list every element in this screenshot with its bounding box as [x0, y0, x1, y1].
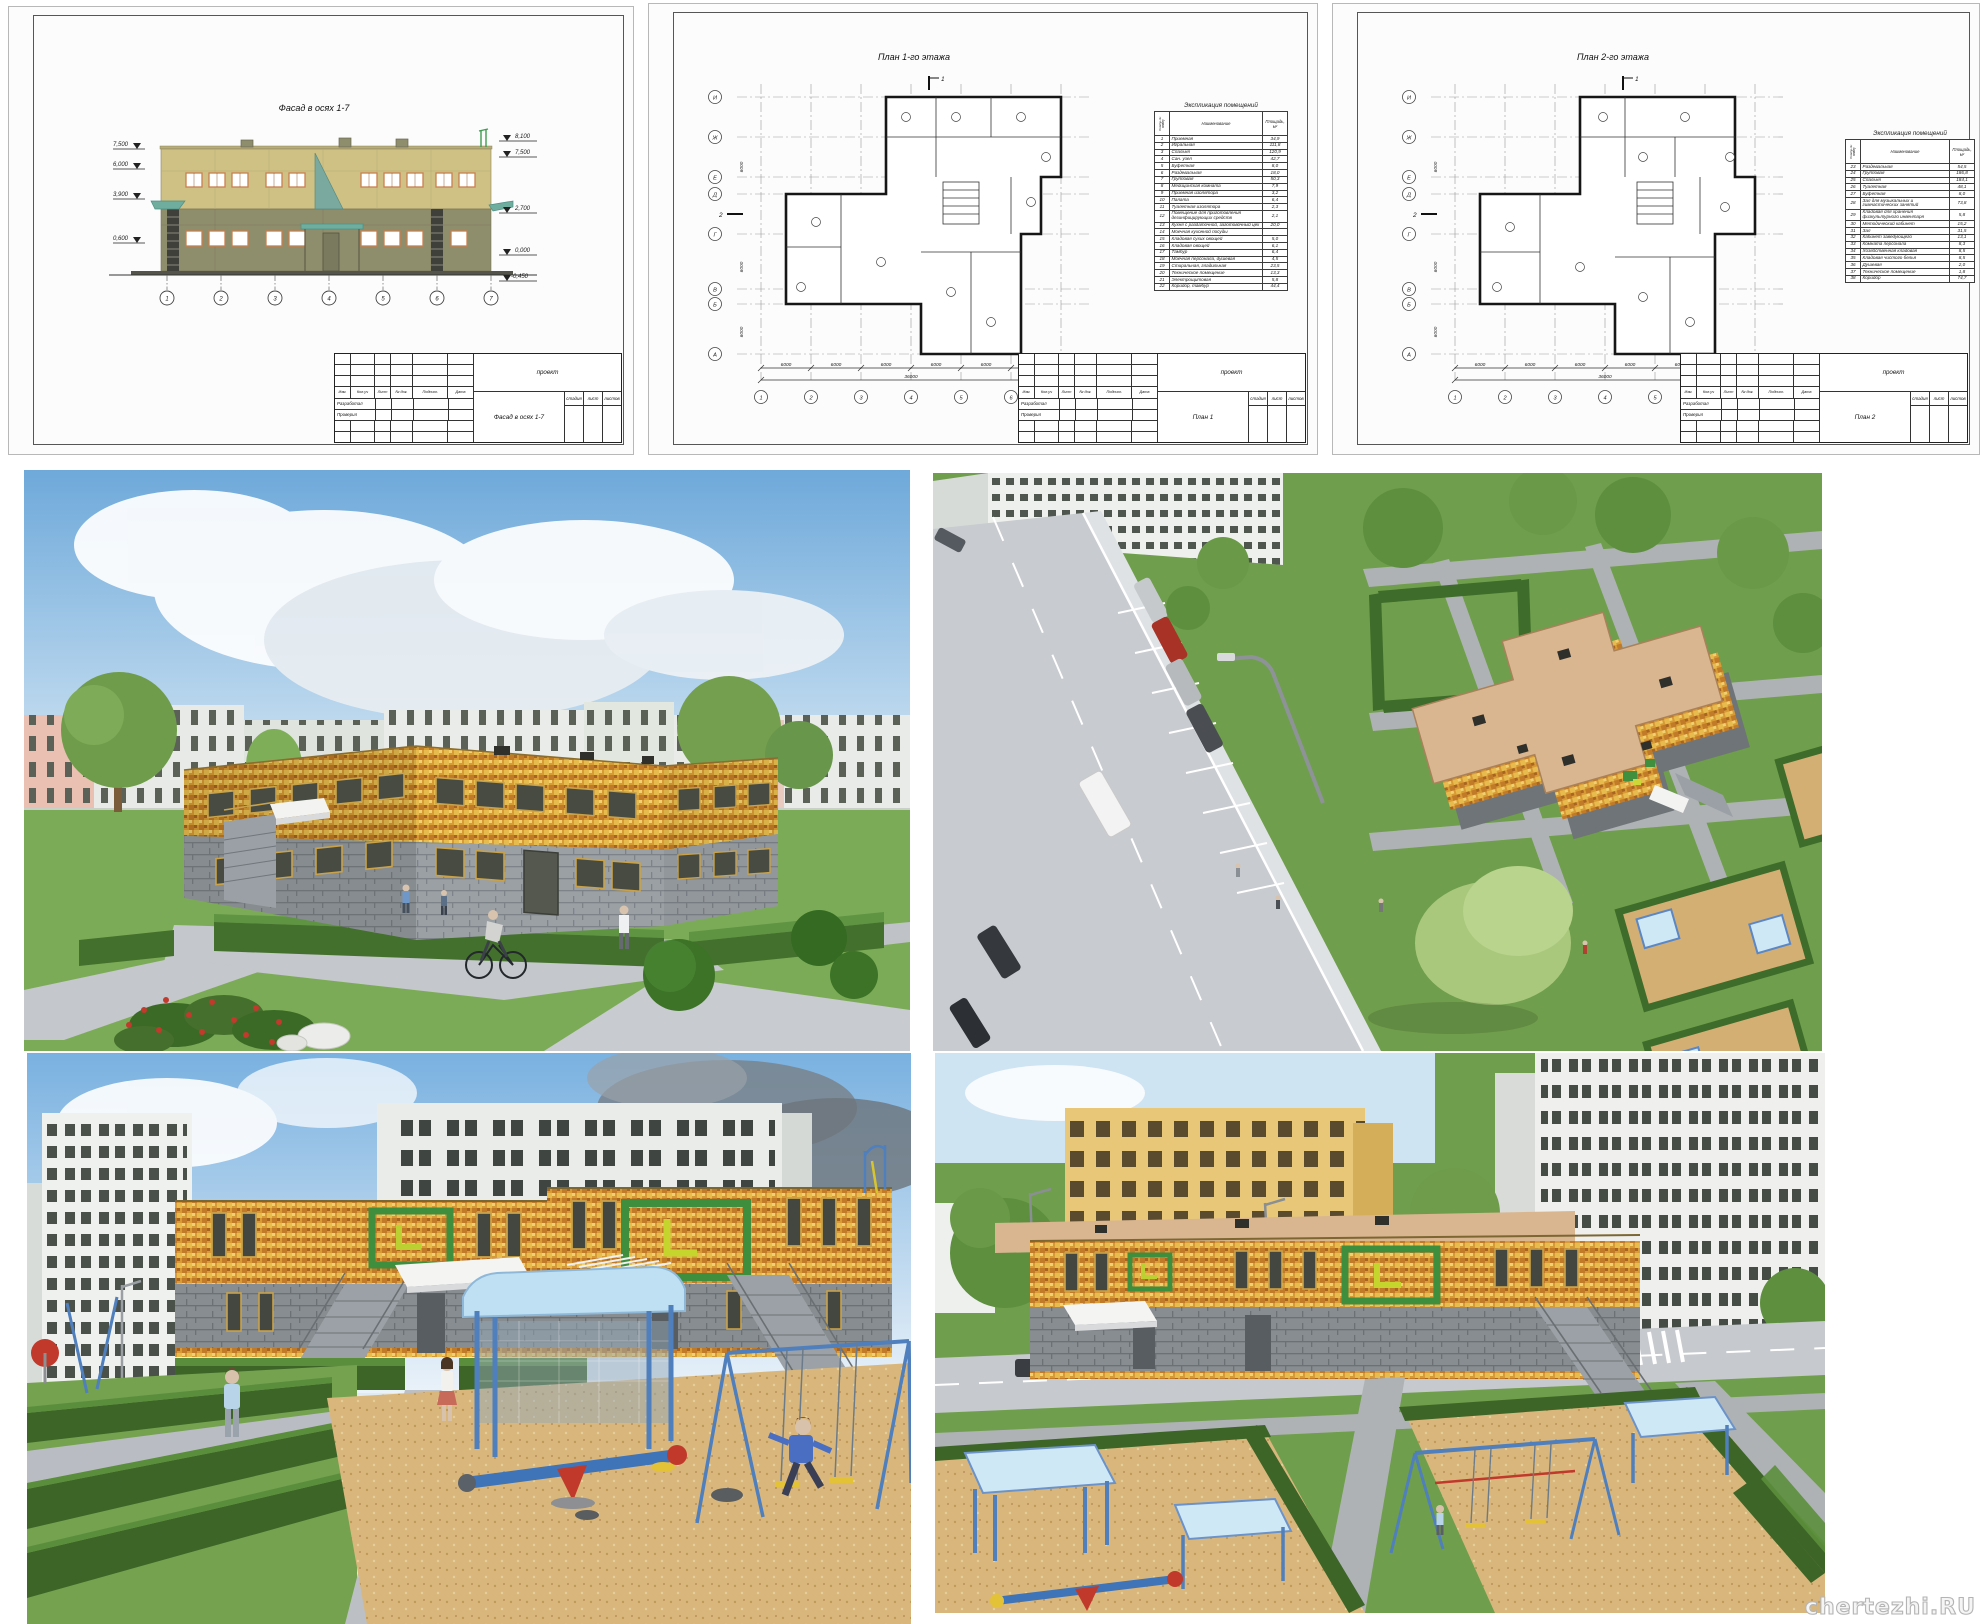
svg-text:Б: Б	[713, 303, 717, 309]
svg-text:Ж: Ж	[1405, 136, 1412, 142]
title-block-project: проект	[1158, 354, 1305, 392]
svg-text:Б: Б	[1407, 303, 1411, 309]
table-row: 10Палата6,4	[1155, 197, 1288, 204]
svg-text:7,500: 7,500	[113, 142, 129, 148]
title-block-doc-title: План 1	[1158, 392, 1249, 442]
table-row: 7Групповая50,3	[1155, 176, 1288, 183]
table-row: 14Моечная кухонной посуды	[1155, 229, 1288, 236]
plan1-drawing-title: План 1-го этажа	[878, 52, 950, 62]
table-row: 30Методический кабинет15,2	[1846, 221, 1975, 228]
room-schedule-title: Экспликация помещений	[1154, 102, 1288, 109]
kindergarten-building	[995, 1211, 1653, 1403]
svg-text:1: 1	[1635, 76, 1639, 83]
svg-text:2: 2	[718, 212, 723, 219]
table-row: 22Коридор, тамбур44,4	[1155, 283, 1288, 290]
render-street-view	[24, 470, 910, 1051]
facade-drawing: 7,500 6,000 3,900 0,600 8,100 7,500 2,70…	[91, 113, 551, 311]
plan1-outline	[786, 97, 1061, 354]
table-row: 28Зал для музыкальных и гимнастических з…	[1846, 198, 1975, 210]
svg-text:6000: 6000	[831, 362, 842, 368]
svg-text:Д: Д	[1406, 193, 1411, 199]
svg-text:1: 1	[165, 297, 168, 303]
table-row: 19Стиральная, гладильная23,5	[1155, 263, 1288, 270]
table-row: 33Комната персонала8,3	[1846, 241, 1975, 248]
svg-text:Ж: Ж	[711, 136, 718, 142]
title-block-project: проект	[474, 354, 621, 392]
facade-drawing-title: Фасад в осях 1-7	[279, 103, 350, 113]
elevation-marks-right: 8,100 7,500 2,700 0,000 -0,450	[499, 134, 537, 281]
project-collage: Фасад в осях 1-7	[0, 0, 1986, 1624]
svg-text:1: 1	[941, 76, 945, 83]
svg-text:Е: Е	[1407, 176, 1411, 182]
table-row: 5Буфетная8,0	[1155, 163, 1288, 170]
svg-text:2,700: 2,700	[514, 206, 531, 212]
svg-text:6000: 6000	[981, 362, 992, 368]
table-row: 32Кабинет заведующего13,1	[1846, 234, 1975, 241]
svg-text:6000: 6000	[1433, 161, 1439, 172]
svg-text:6000: 6000	[931, 362, 942, 368]
table-row: 12Помещение для приготовления дезинфицир…	[1155, 210, 1288, 222]
svg-text:В: В	[713, 288, 717, 294]
room-schedule: Экспликация помещений Номер по плану Наи…	[1845, 130, 1975, 283]
table-row: 24Групповая186,8	[1846, 170, 1975, 177]
plan2-drawing-title: План 2-го этажа	[1577, 52, 1649, 62]
table-row: 21Электрощитовая5,8	[1155, 277, 1288, 284]
table-row: 25Спальня184,1	[1846, 177, 1975, 184]
site-watermark: chertezhi.RU	[1805, 1595, 1976, 1620]
svg-text:1: 1	[1453, 396, 1456, 402]
svg-text:6000: 6000	[739, 261, 745, 272]
svg-text:6000: 6000	[739, 161, 745, 172]
facade-building	[109, 129, 537, 275]
table-row: 20Техническое помещение13,3	[1155, 270, 1288, 277]
table-row: 29Кладовая для хранения физкультурного и…	[1846, 209, 1975, 221]
table-row: 35Кладовая чистого белья8,5	[1846, 255, 1975, 262]
table-row: 1Приемная34,9	[1155, 136, 1288, 143]
table-row: 36Душевая2,0	[1846, 262, 1975, 269]
svg-text:Е: Е	[713, 176, 717, 182]
title-block-project: проект	[1820, 354, 1967, 392]
svg-text:6000: 6000	[1433, 326, 1439, 337]
roof-vents	[241, 138, 408, 147]
svg-text:6000: 6000	[1625, 362, 1636, 368]
render-playground-view	[27, 1053, 911, 1624]
table-row: 27Буфетная8,0	[1846, 191, 1975, 198]
svg-text:1: 1	[759, 396, 762, 402]
left-hedges-path	[27, 1365, 367, 1624]
table-row: 31Зал31,5	[1846, 228, 1975, 235]
facade-entrance-door	[323, 233, 339, 271]
elevation-marks-left: 7,500 6,000 3,900 0,600	[113, 142, 145, 243]
table-row: 9Приемная изолятора3,2	[1155, 190, 1288, 197]
table-row: 26Туалетная48,1	[1846, 184, 1975, 191]
title-block: Изм.Кол.учЛист№ док.ПодписьДата Разработ…	[1018, 353, 1306, 443]
title-block-doc-title: Фасад в осях 1-7	[474, 392, 565, 442]
svg-text:0,600: 0,600	[113, 236, 129, 242]
svg-text:7,500: 7,500	[515, 150, 531, 156]
svg-text:8,100: 8,100	[515, 134, 531, 140]
table-row: 8Медицинская комната7,9	[1155, 183, 1288, 190]
table-row: 2Игральная111,8	[1155, 142, 1288, 149]
room-schedule-rows: 1Приемная34,92Игральная111,83Спальня120,…	[1155, 136, 1288, 291]
svg-text:И: И	[1407, 96, 1411, 102]
kindergarten-building	[184, 746, 778, 940]
room-schedule-rows: 23Раздевальная54,524Групповая186,825Спал…	[1846, 164, 1975, 283]
svg-text:6000: 6000	[739, 326, 745, 337]
svg-text:2: 2	[218, 297, 223, 303]
table-row: 23Раздевальная54,5	[1846, 164, 1975, 171]
svg-text:В: В	[1407, 288, 1411, 294]
sheet-plan1: План 1-го этажа	[648, 3, 1318, 455]
table-row: 15Кладовая сухих овощей5,0	[1155, 236, 1288, 243]
roof-mast	[479, 129, 488, 147]
facade-entrance-canopy	[301, 224, 363, 229]
table-row: 34Хозяйственная кладовая8,5	[1846, 248, 1975, 255]
table-row: 3Спальня120,9	[1155, 149, 1288, 156]
facade-axes: 12 34 56 7	[160, 275, 498, 305]
svg-text:4: 4	[909, 396, 912, 402]
svg-text:3,900: 3,900	[113, 192, 129, 198]
title-block: Изм.Кол.учЛист№ док.ПодписьДата Разработ…	[334, 353, 622, 443]
render-aerial-view	[933, 473, 1822, 1051]
table-row: 11Туалетная изолятора2,3	[1155, 204, 1288, 211]
table-row: 4Сан. узел42,7	[1155, 156, 1288, 163]
svg-text:А: А	[1406, 353, 1411, 359]
table-row: 16Кладовая овощей6,1	[1155, 243, 1288, 250]
table-row: 17Тамбур6,4	[1155, 249, 1288, 256]
svg-text:36000: 36000	[904, 374, 918, 380]
svg-text:6000: 6000	[1433, 261, 1439, 272]
plan1-axes-v: ИЖ ЕД ГВ БА	[709, 91, 722, 361]
svg-text:6000: 6000	[881, 362, 892, 368]
table-row: 38Коридор74,7	[1846, 275, 1975, 282]
plan2-outline	[1480, 97, 1755, 354]
svg-text:0,000: 0,000	[515, 248, 531, 254]
svg-text:Д: Д	[712, 193, 717, 199]
svg-text:6000: 6000	[1475, 362, 1486, 368]
svg-text:6000: 6000	[1575, 362, 1586, 368]
svg-text:6000: 6000	[781, 362, 792, 368]
sheet-facade: Фасад в осях 1-7	[8, 6, 634, 455]
svg-text:6000: 6000	[1525, 362, 1536, 368]
svg-text:4: 4	[1603, 396, 1606, 402]
svg-text:-0,450: -0,450	[511, 274, 529, 280]
sheet-plan2: План 2-го этажа	[1332, 3, 1980, 455]
svg-text:6,000: 6,000	[113, 162, 129, 168]
table-row: 13Кухня с раздаточной, заготовочный цех2…	[1155, 222, 1288, 229]
table-row: 37Техническое помещение1,8	[1846, 269, 1975, 276]
room-schedule-title: Экспликация помещений	[1845, 130, 1975, 137]
room-schedule: Экспликация помещений Номер по плану Наи…	[1154, 102, 1288, 291]
render-aerial-playground	[935, 1053, 1825, 1613]
plan2-axes-v: ИЖ ЕД ГВ БА	[1403, 91, 1416, 361]
svg-text:А: А	[712, 353, 717, 359]
svg-text:И: И	[713, 96, 717, 102]
svg-text:2: 2	[1412, 212, 1417, 219]
canopy-white	[1063, 1301, 1157, 1331]
svg-text:36000: 36000	[1598, 374, 1612, 380]
title-block: Изм.Кол.учЛист№ док.ПодписьДата Разработ…	[1680, 353, 1968, 443]
table-row: 18Моечная персонала, душевая4,5	[1155, 256, 1288, 263]
table-row: 6Раздевальная18,0	[1155, 170, 1288, 177]
title-block-doc-title: План 2	[1820, 392, 1911, 442]
